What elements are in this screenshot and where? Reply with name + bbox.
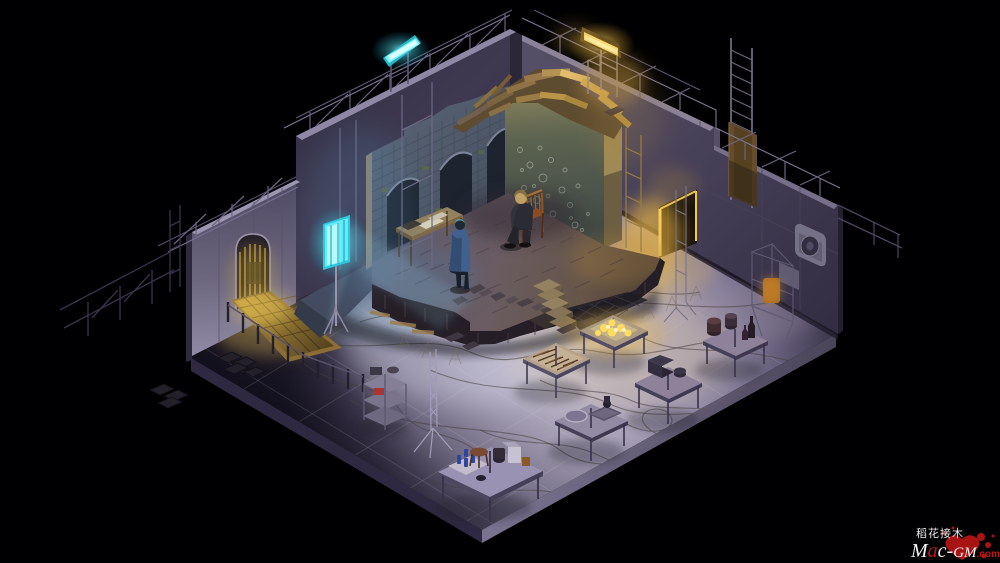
svg-text:稻花接木: 稻花接木 [916, 527, 964, 540]
